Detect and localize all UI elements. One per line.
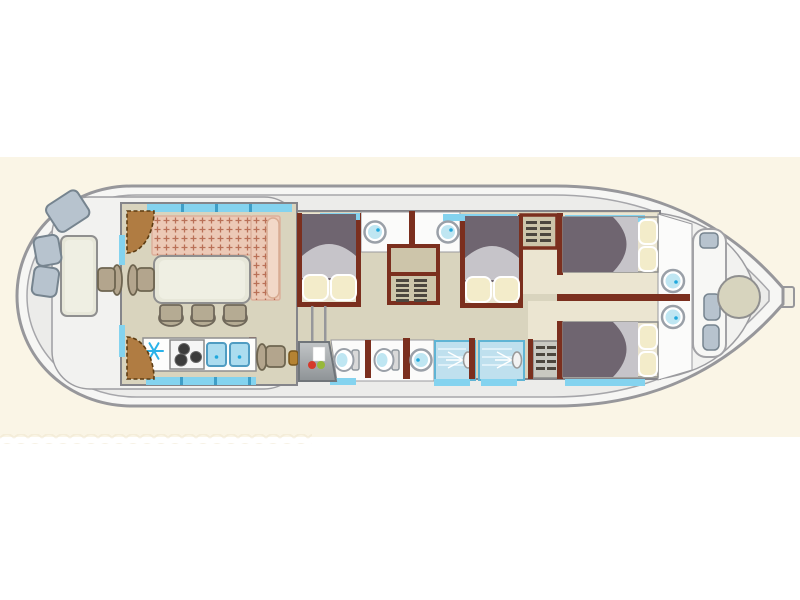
exterior-helm-chair-seat [98,268,115,291]
stool [191,305,215,326]
bed-blanket [563,322,627,377]
tap-icon [376,228,380,232]
burner-icon [191,352,202,363]
faint-scallop-texture [0,434,312,444]
burner-icon [175,354,187,366]
pillow [303,275,328,300]
wardrobe-midship [389,246,438,303]
shower-head-icon [513,352,522,368]
wc-2-toilet [375,349,400,371]
hob-3-burner [170,340,204,369]
cushion [703,325,719,350]
washbasin [662,306,684,328]
shower-2 [479,341,524,380]
pillow [639,325,657,349]
pillow [639,247,657,271]
stool [223,305,247,326]
stool [159,305,183,326]
burner-icon [179,344,190,355]
bow-round-table [718,276,760,318]
door-track [324,306,327,342]
helm-chair-seat [266,346,285,367]
wardrobe-aft-cabin [533,341,558,378]
washbasin [438,222,459,243]
wardrobe-bow-cabin [521,215,557,248]
tap-icon [449,228,453,232]
cushion [700,233,718,248]
bed-blanket [563,217,627,272]
stools [159,305,247,326]
steering-wheel-icon [289,351,298,365]
dining-chair [128,265,154,295]
bow-cabins-center-wall [557,294,690,301]
dining-table [154,256,250,303]
wc-1-toilet [335,349,360,371]
pillow [494,277,519,302]
pillow [331,275,356,300]
drain-icon [238,355,242,359]
pillow [639,220,657,244]
galley [143,338,256,371]
washbasin [365,222,386,243]
pillow [639,352,657,376]
tap-icon [674,280,678,284]
washbasin [411,350,432,371]
starboard-light-icon [317,361,325,369]
sofa-bolster [267,218,279,298]
washbasin [662,270,684,292]
cabin-bow-starboard-bed [563,322,658,377]
door-track [311,306,314,342]
cabin-midship-starboard-bed [465,216,519,302]
bench-cushion [33,234,63,267]
tap-icon [416,358,420,362]
bench-cushion [31,265,60,297]
boat-floor-plan [0,0,800,600]
deck-plan-canvas [0,0,800,600]
pillow [466,277,491,302]
tap-icon [674,316,678,320]
console-screen [313,347,325,361]
port-light-icon [308,361,316,369]
cabin-midship-port-bed [302,214,356,300]
drain-icon [215,355,219,359]
cabin-bow-port-bed [563,217,658,272]
